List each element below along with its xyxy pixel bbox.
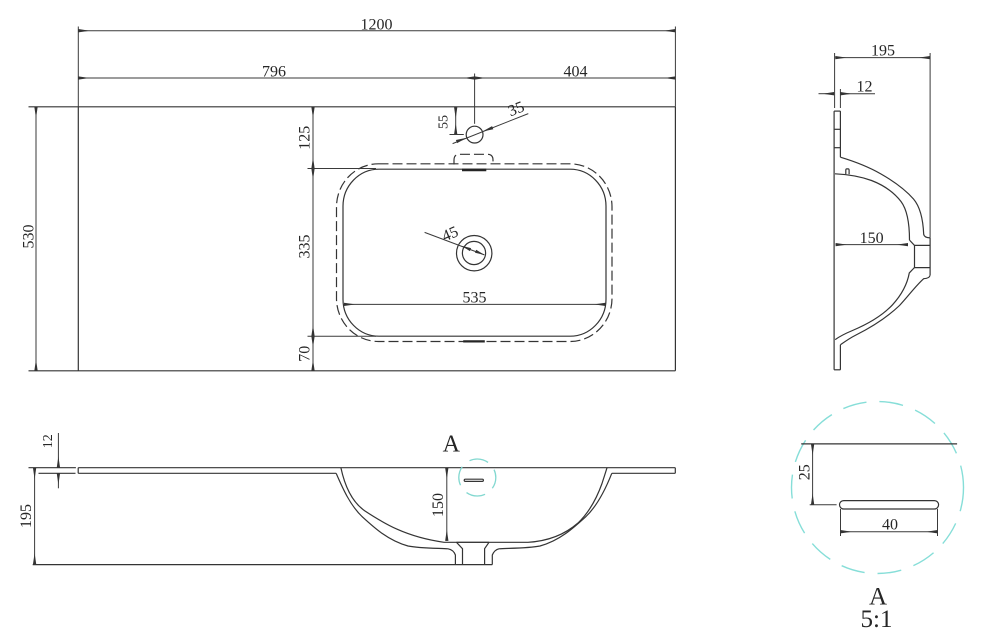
svg-text:35: 35 bbox=[506, 98, 527, 120]
svg-text:150: 150 bbox=[860, 230, 884, 247]
svg-text:404: 404 bbox=[564, 63, 588, 80]
svg-text:12: 12 bbox=[857, 79, 873, 96]
svg-text:530: 530 bbox=[21, 225, 38, 249]
svg-text:5:1: 5:1 bbox=[861, 606, 893, 633]
svg-text:70: 70 bbox=[296, 346, 313, 362]
svg-text:25: 25 bbox=[797, 464, 814, 480]
svg-text:796: 796 bbox=[262, 63, 286, 80]
svg-text:12: 12 bbox=[41, 434, 56, 448]
svg-text:150: 150 bbox=[430, 493, 447, 517]
svg-text:535: 535 bbox=[463, 290, 487, 307]
svg-text:40: 40 bbox=[882, 517, 898, 534]
svg-text:1200: 1200 bbox=[361, 16, 393, 33]
svg-text:195: 195 bbox=[871, 43, 895, 60]
svg-text:195: 195 bbox=[18, 504, 35, 528]
svg-text:A: A bbox=[443, 432, 461, 458]
svg-text:45: 45 bbox=[440, 223, 461, 245]
svg-text:55: 55 bbox=[437, 115, 452, 129]
svg-text:125: 125 bbox=[296, 126, 313, 150]
svg-text:335: 335 bbox=[296, 235, 313, 259]
